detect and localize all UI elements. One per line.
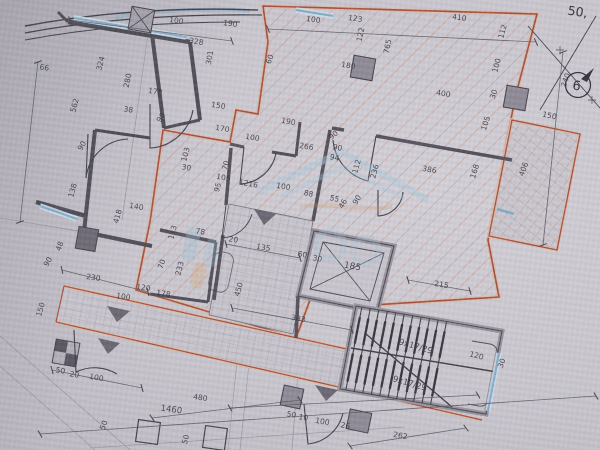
dim-label: 562 [68,97,80,113]
dim-label: 60 [297,249,308,260]
dim-label: 20 [69,369,80,380]
dim-label: 10 [298,412,309,423]
dim-label: 90 [42,255,55,268]
dim-label: 280 [122,72,134,88]
dim-label: 50 [55,365,66,376]
dim-label: 100 [315,416,331,427]
dim-label: 150 [542,110,558,122]
dim-label: 138 [66,182,78,198]
grid-marker-arrow [581,68,594,82]
dim-label: 100 [89,372,105,383]
dim-label: 90 [76,139,89,152]
dim-label: 262 [393,430,409,441]
grid-marker-number: 6 [571,78,582,94]
corner-dimension: 50, [567,3,589,21]
dim-label: 30 [181,162,192,173]
grid-axis-marker: 6 50, [528,3,600,110]
dim-label: 78 [195,226,206,236]
dim-label: 190 [223,18,239,29]
floorplan-drawing: 6 50, 1001903283013242806656238901789013… [0,0,600,450]
floorplan-photo: 6 50, 1001903283013242806656238901789013… [0,0,600,450]
dim-label: 20 [228,234,239,244]
dim-label: 170 [215,123,231,134]
dim-label: 301 [204,50,215,66]
column-outline [203,426,228,450]
dim-label: 100 [169,15,185,26]
dim-label: 480 [193,392,209,403]
dim-label: 30 [496,357,508,369]
dim-label: 140 [129,201,145,212]
dim-label: 150 [34,301,46,317]
dim-label: 324 [94,55,106,71]
dim-label: 150 [211,100,227,111]
dim-label: 30 [312,253,323,264]
dim-label: 26 [340,420,351,431]
column [75,226,99,251]
column [503,85,528,110]
dim-label: 418 [111,208,123,224]
dim-label: 38 [123,104,134,114]
dim-label: 1460 [160,404,183,417]
dim-label: 50 [286,409,297,420]
door-arc [74,330,117,374]
dim-label: 230 [86,272,102,283]
dim-label: 66 [39,62,50,72]
dim-label: 178 [148,86,164,97]
dim-label: 90 [155,111,168,124]
dim-label: 48 [54,240,66,252]
dim-label: 50 [180,433,191,445]
column-outline [136,420,161,445]
